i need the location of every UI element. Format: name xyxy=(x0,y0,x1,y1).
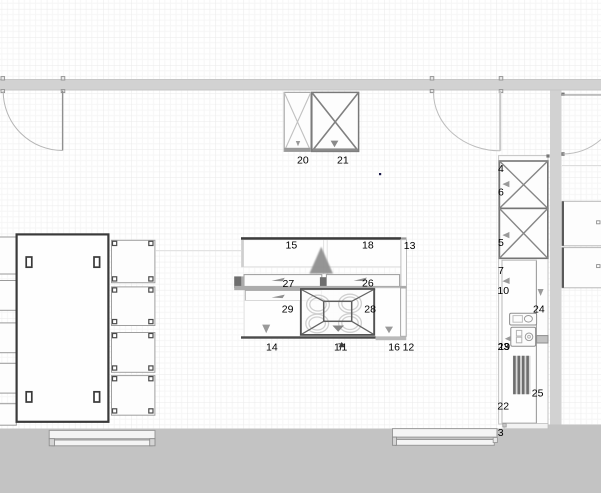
svg-text:24: 24 xyxy=(533,304,545,316)
svg-text:12: 12 xyxy=(403,341,415,353)
svg-text:20: 20 xyxy=(297,155,309,167)
svg-text:29: 29 xyxy=(282,303,294,315)
svg-text:25: 25 xyxy=(532,387,544,399)
svg-text:6: 6 xyxy=(498,187,504,199)
svg-text:22: 22 xyxy=(497,401,509,413)
svg-text:18: 18 xyxy=(362,239,374,251)
svg-text:10: 10 xyxy=(497,285,509,297)
svg-text:28: 28 xyxy=(364,303,376,315)
svg-text:7: 7 xyxy=(498,265,504,277)
svg-text:13: 13 xyxy=(404,240,416,252)
svg-text:5: 5 xyxy=(498,237,504,249)
svg-text:3: 3 xyxy=(498,427,504,439)
svg-text:19: 19 xyxy=(498,341,510,353)
svg-text:4: 4 xyxy=(498,163,504,175)
svg-text:14: 14 xyxy=(266,341,278,353)
svg-text:21: 21 xyxy=(337,155,349,167)
svg-text:27: 27 xyxy=(283,278,295,290)
svg-text:26: 26 xyxy=(362,278,374,290)
svg-text:15: 15 xyxy=(286,239,298,251)
svg-text:16: 16 xyxy=(388,341,400,353)
